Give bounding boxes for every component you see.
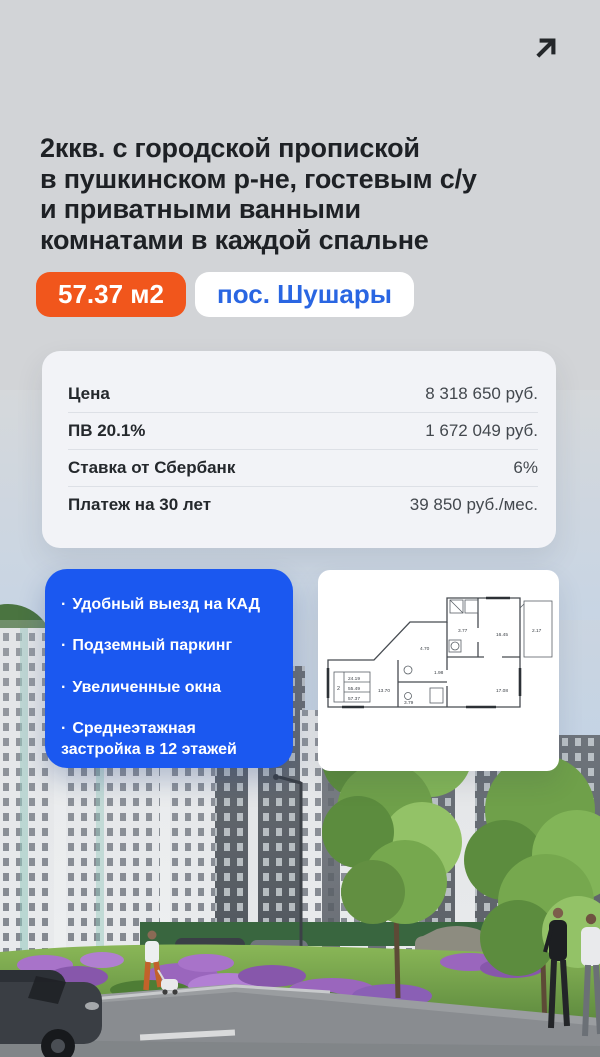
floor-plan-card: 2 24.19 55.49 57.37 3.77 16.45 2.17 4.70… <box>318 570 559 771</box>
title-line: 2ккв. с городской пропиской <box>40 133 580 164</box>
bullet: · <box>61 596 66 613</box>
plan-label-bath-top: 3.77 <box>458 628 468 634</box>
plan-label-hall: 4.70 <box>420 646 430 652</box>
badge-row: 57.37 м2 пос. Шушары <box>36 272 414 317</box>
bullet: · <box>61 679 66 696</box>
rate-value: 6% <box>513 458 538 478</box>
price-row: ПВ 20.1% 1 672 049 руб. <box>68 413 538 450</box>
feature-text: Среднеэтажная застройка в 12 этажей <box>61 720 237 757</box>
feature-item: ·Подземный паркинг <box>61 636 279 656</box>
feature-item: ·Удобный выезд на КАД <box>61 595 279 615</box>
payment-label: Платеж на 30 лет <box>68 495 211 515</box>
plan-label-balcony: 2.17 <box>532 628 542 634</box>
plan-label-room-left: 13.70 <box>378 688 390 694</box>
plan-area-living: 24.19 <box>348 676 360 682</box>
share-arrow-icon[interactable] <box>532 33 561 62</box>
title-line: комнатами в каждой спальне <box>40 225 580 256</box>
rate-label: Ставка от Сбербанк <box>68 458 235 478</box>
bullet: · <box>61 720 66 737</box>
plan-rooms-count: 2 <box>337 686 340 692</box>
downpayment-value: 1 672 049 руб. <box>425 421 538 441</box>
page-title: 2ккв. с городской пропиской в пушкинском… <box>40 133 580 255</box>
price-row: Платеж на 30 лет 39 850 руб./мес. <box>68 487 538 523</box>
price-label: Цена <box>68 384 110 404</box>
story-ad-page: 2ккв. с городской пропиской в пушкинском… <box>0 0 600 1057</box>
title-line: в пушкинском р-не, гостевым с/у <box>40 164 580 195</box>
feature-text: Увеличенные окна <box>72 679 221 696</box>
title-line: и приватными ванными <box>40 194 580 225</box>
location-badge: пос. Шушары <box>195 272 414 317</box>
plan-area-main: 55.49 <box>348 686 360 692</box>
price-card: Цена 8 318 650 руб. ПВ 20.1% 1 672 049 р… <box>42 351 556 548</box>
plan-label-bath: 3.79 <box>404 700 414 706</box>
features-card: ·Удобный выезд на КАД ·Подземный паркинг… <box>45 569 293 768</box>
plan-area-total: 57.37 <box>348 696 360 702</box>
floor-plan-image: 2 24.19 55.49 57.37 3.77 16.45 2.17 4.70… <box>318 570 559 771</box>
price-row: Цена 8 318 650 руб. <box>68 376 538 413</box>
bullet: · <box>61 637 66 654</box>
plan-label-living: 17.08 <box>496 688 508 694</box>
price-row: Ставка от Сбербанк 6% <box>68 450 538 487</box>
feature-text: Подземный паркинг <box>72 637 232 654</box>
feature-item: ·Увеличенные окна <box>61 678 279 698</box>
plan-label-bedroom: 16.45 <box>496 632 508 638</box>
downpayment-label: ПВ 20.1% <box>68 421 145 441</box>
plan-label-wc: 1.98 <box>434 670 444 676</box>
area-badge: 57.37 м2 <box>36 272 186 317</box>
feature-text: Удобный выезд на КАД <box>72 596 260 613</box>
feature-item: ·Среднеэтажная застройка в 12 этажей <box>61 719 279 760</box>
payment-value: 39 850 руб./мес. <box>410 495 538 515</box>
price-value: 8 318 650 руб. <box>425 384 538 404</box>
